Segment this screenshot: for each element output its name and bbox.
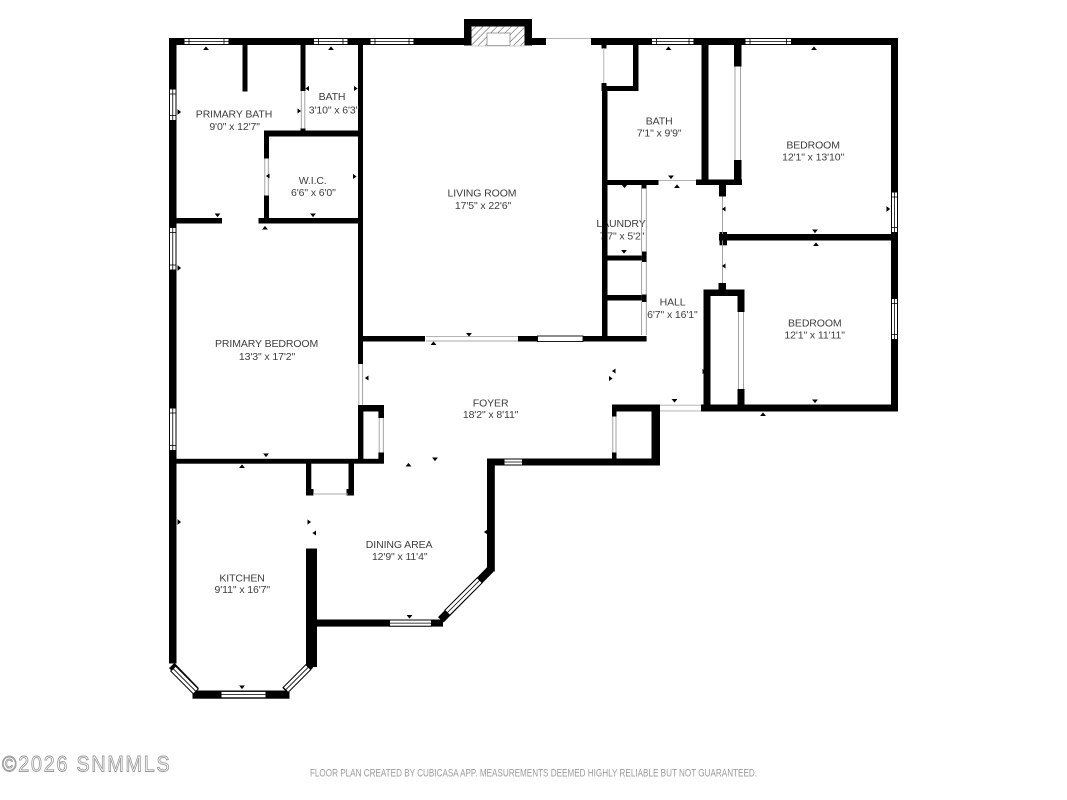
svg-text:W.I.C.: W.I.C. [299, 175, 327, 187]
svg-text:FOYER: FOYER [473, 397, 509, 409]
svg-text:BEDROOM: BEDROOM [788, 317, 842, 329]
svg-text:BATH: BATH [319, 91, 346, 103]
svg-text:HALL: HALL [660, 296, 686, 308]
svg-text:12'9" x 11'4": 12'9" x 11'4" [372, 551, 428, 563]
svg-text:13'3" x 17'2": 13'3" x 17'2" [239, 351, 296, 363]
svg-text:9'0" x 12'7": 9'0" x 12'7" [209, 121, 260, 133]
svg-text:12'1" x 11'11": 12'1" x 11'11" [784, 330, 845, 342]
svg-text:FLOOR PLAN CREATED BY CUBICASA: FLOOR PLAN CREATED BY CUBICASA APP. MEAS… [310, 767, 757, 779]
svg-text:3'10" x 6'3": 3'10" x 6'3" [309, 105, 360, 117]
svg-text:BEDROOM: BEDROOM [786, 140, 840, 152]
svg-text:DINING AREA: DINING AREA [366, 539, 433, 551]
svg-text:BATH: BATH [646, 116, 673, 128]
svg-text:18'2" x 8'11": 18'2" x 8'11" [463, 409, 519, 421]
svg-text:7'1" x 9'9": 7'1" x 9'9" [637, 128, 682, 140]
svg-text:9'11" x 16'7": 9'11" x 16'7" [215, 584, 271, 596]
svg-text:KITCHEN: KITCHEN [219, 572, 264, 584]
svg-text:6'7" x 16'1": 6'7" x 16'1" [647, 309, 698, 321]
svg-text:PRIMARY BEDROOM: PRIMARY BEDROOM [215, 338, 318, 350]
svg-text:©2026 SNMMLS: ©2026 SNMMLS [2, 753, 171, 777]
svg-text:12'1" x 13'10": 12'1" x 13'10" [782, 151, 844, 163]
svg-text:17'5" x 22'6": 17'5" x 22'6" [455, 200, 512, 212]
svg-text:LIVING ROOM: LIVING ROOM [448, 188, 517, 200]
svg-text:PRIMARY BATH: PRIMARY BATH [196, 109, 272, 121]
svg-text:6'6" x 6'0": 6'6" x 6'0" [291, 187, 336, 199]
